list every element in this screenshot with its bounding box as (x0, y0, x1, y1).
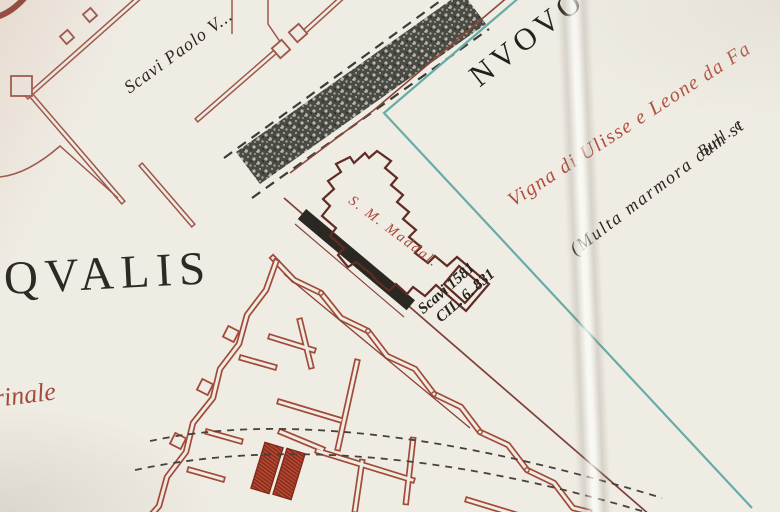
excavated-rooms-hatched (251, 442, 305, 499)
map-canvas: QVALIS NVOVO rinale Scavi Paolo V... Vig… (0, 0, 780, 512)
label-hill-name: QVALIS (3, 245, 213, 303)
wall-corner-block (11, 76, 32, 96)
corner-wall-arc (0, 0, 27, 17)
dashed-arcs (135, 429, 662, 512)
gravel-road-band (224, 0, 489, 198)
palazzo-room-walls (190, 321, 540, 512)
